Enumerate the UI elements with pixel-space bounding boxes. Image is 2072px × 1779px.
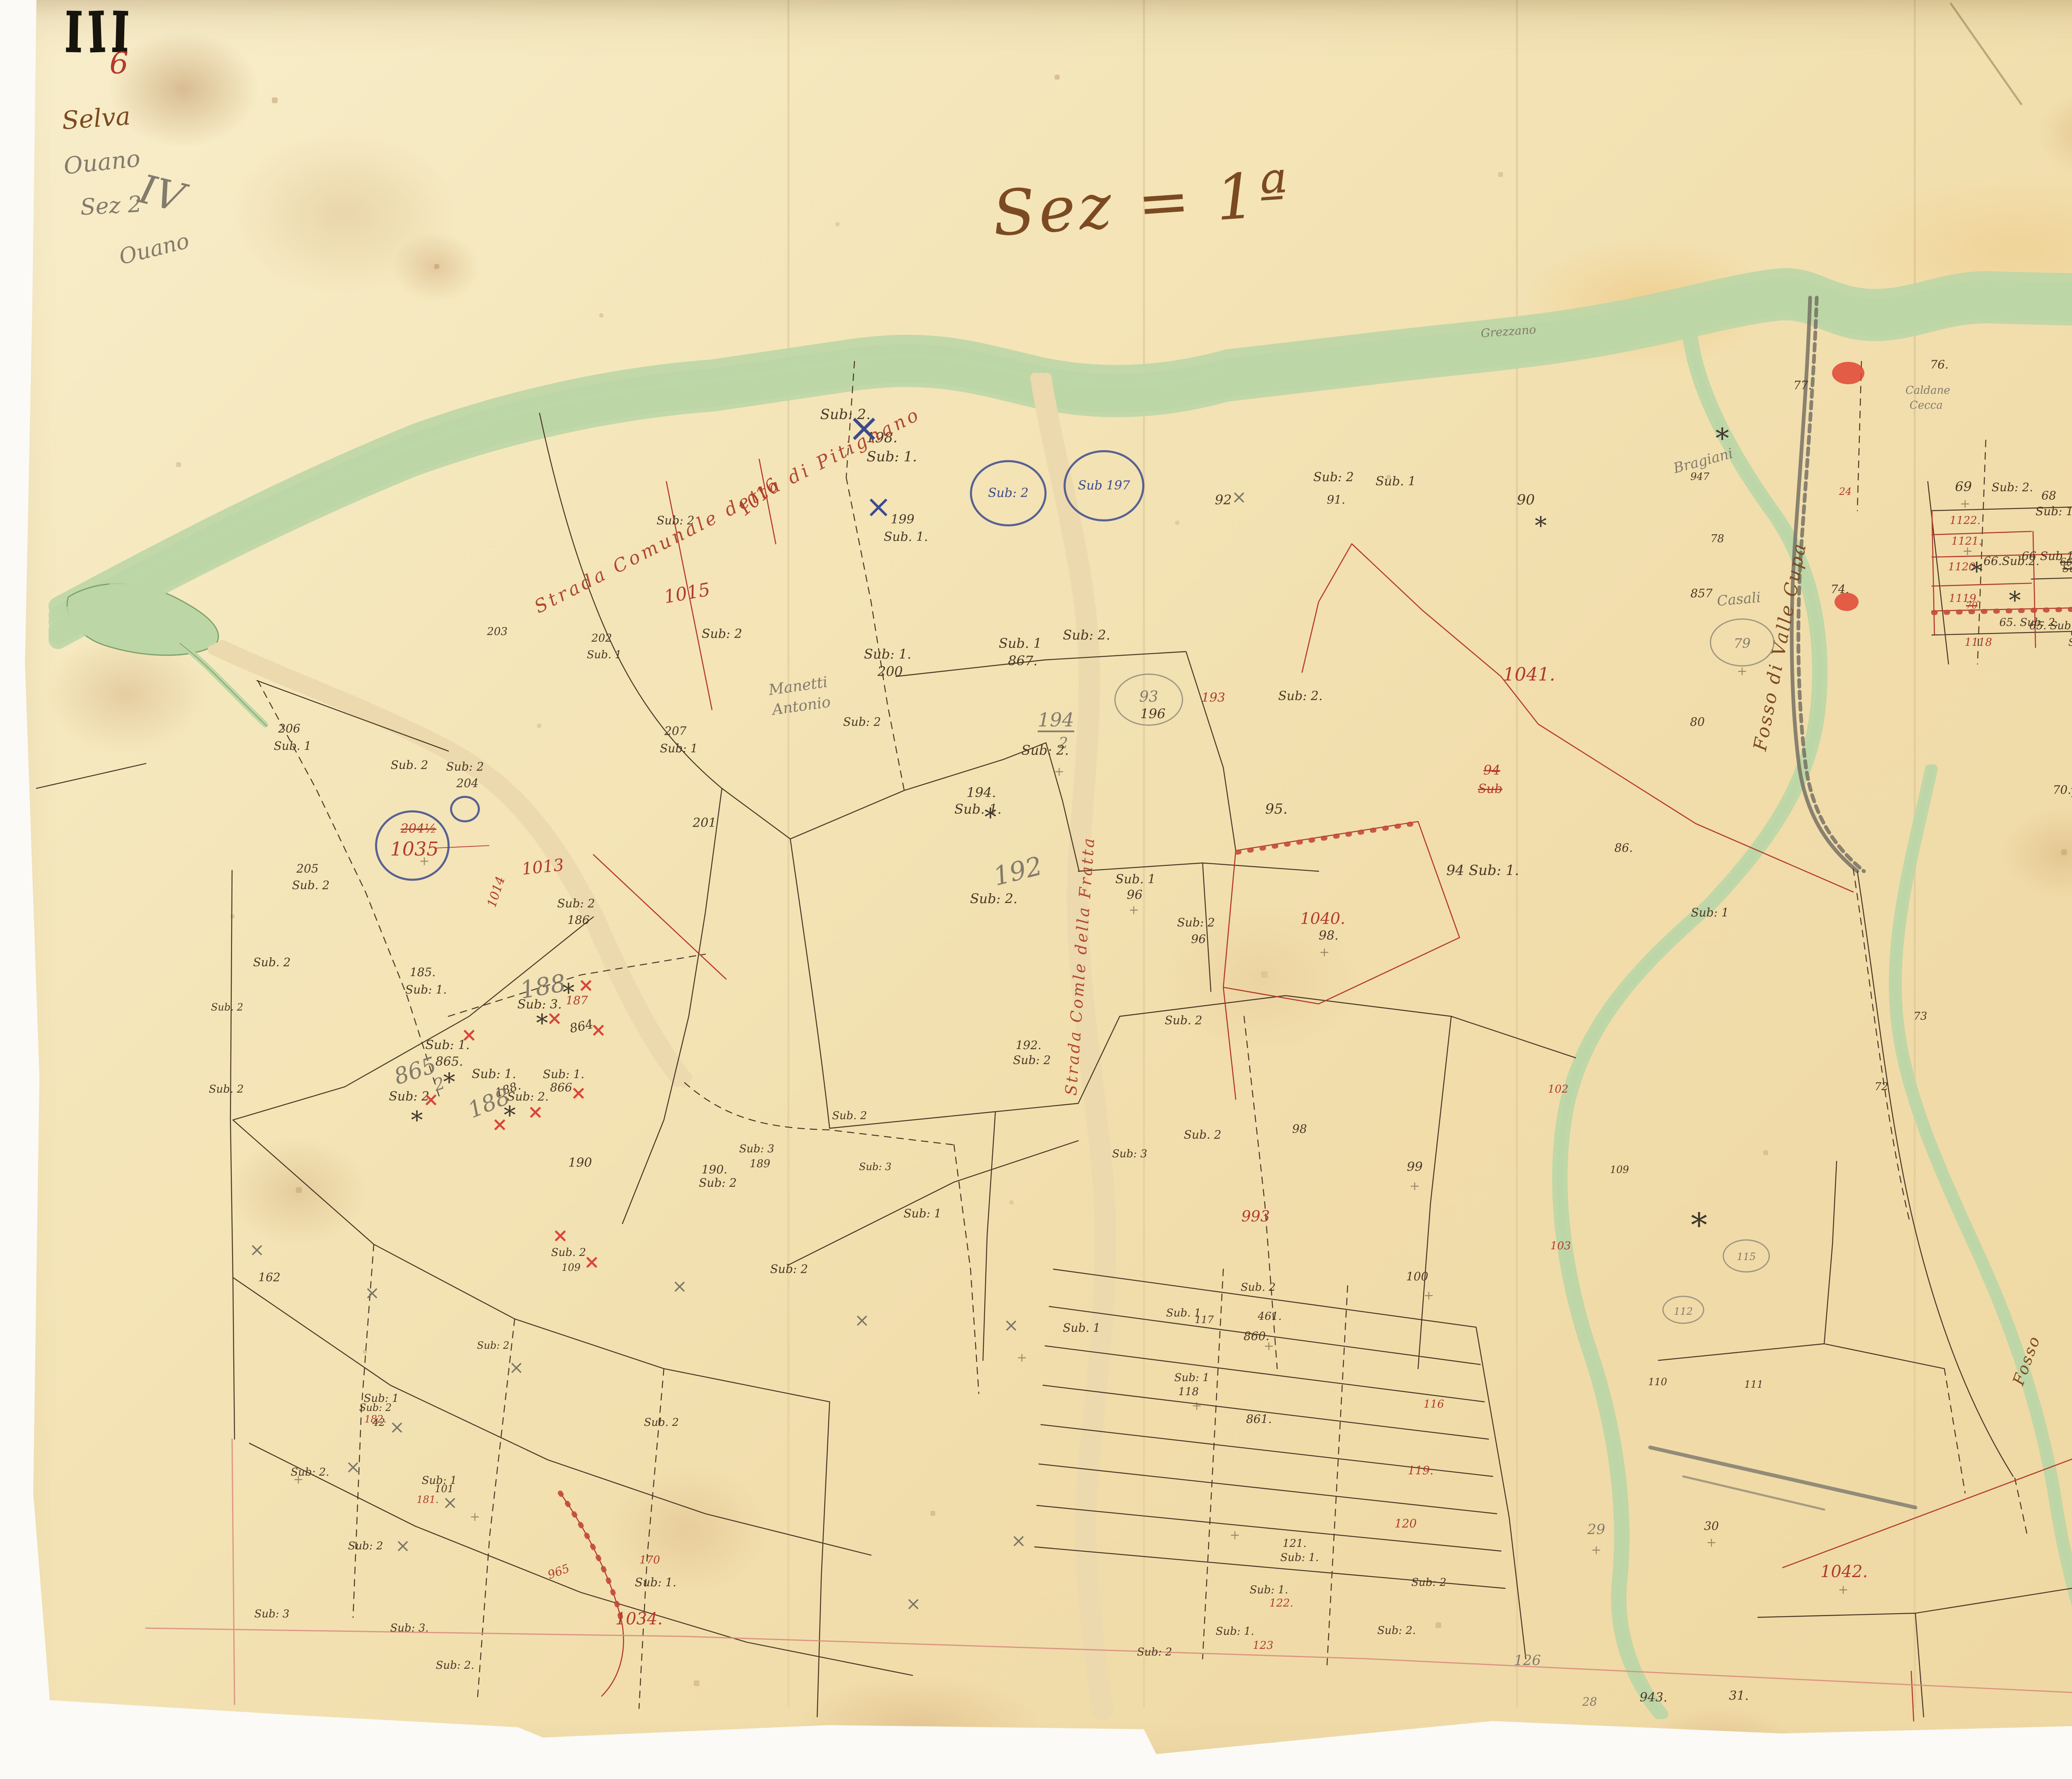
parcel-label: Sub: 2.: [1377, 1625, 1416, 1636]
parcel-label: Sub: 2.: [1278, 690, 1322, 703]
xp-mark: ×: [509, 1359, 524, 1377]
xp-mark: ×: [854, 1311, 870, 1330]
parcel-label: Casali: [1716, 590, 1761, 608]
parcel-label: 42: [373, 1418, 385, 1428]
parcel-label: Sub: 1.: [867, 450, 917, 464]
parcel-label: Sub: 1.: [1249, 1585, 1288, 1595]
parcel-label: 193: [1201, 692, 1225, 704]
parcel-label: Sub. 2: [292, 880, 330, 891]
parcel-label: Sub. 1: [1375, 475, 1416, 488]
xred-mark: ×: [461, 1025, 477, 1044]
parcel-label: 199: [891, 514, 914, 526]
parcel-label: 96: [1191, 933, 1206, 945]
xp-mark: ×: [906, 1595, 921, 1613]
parcel-label: Sub. 2: [209, 1084, 244, 1095]
parcel-label: 1013: [521, 857, 564, 877]
parcel-label: Sub: 2: [702, 628, 742, 640]
plus-mark: +: [1128, 904, 1139, 916]
astk-mark: *: [563, 980, 575, 1004]
parcel-label: Sub: 1.: [2068, 637, 2072, 647]
parcel-label: Grezzano: [1480, 324, 1536, 339]
parcel-label: 99: [1407, 1161, 1423, 1173]
parcel-label: 201: [692, 817, 716, 829]
plus-mark: +: [1838, 1584, 1848, 1596]
parcel-label: Sub: 2.: [1021, 744, 1069, 757]
parcel-label: 98: [1292, 1123, 1307, 1135]
parcel-label: 80: [1690, 716, 1705, 728]
red-blob-mark: [1835, 593, 1859, 611]
pencil-circle-mark: [1663, 1296, 1704, 1324]
parcel-label: Sub: 2: [477, 1340, 509, 1350]
parcel-label: 1014: [486, 875, 507, 909]
parcel-label: Sub: 3: [1112, 1149, 1147, 1159]
parcel-label: 109: [1610, 1165, 1629, 1175]
xp-mark: ×: [672, 1277, 687, 1296]
parcel-label: Sub. 2: [551, 1247, 586, 1258]
parcel-label: 200: [877, 665, 903, 678]
parcel-label: Sub: 1: [660, 743, 697, 754]
parcel-label: Sub. 1.: [884, 531, 928, 543]
parcel-label: 865: [392, 1054, 439, 1088]
parcel-label: 1122.: [1950, 515, 1980, 526]
plus-mark: +: [1191, 1400, 1202, 1412]
parcel-label: 943.: [1640, 1692, 1668, 1704]
parcel-label: 95.: [1265, 802, 1288, 816]
parcel-label: Sub: 2: [843, 716, 881, 728]
parcel-label: Sub: 1.: [472, 1068, 516, 1081]
plus-mark: +: [1017, 1352, 1027, 1364]
parcel-label: 117: [1195, 1315, 1214, 1325]
plus-mark: +: [1264, 1340, 1274, 1352]
parcel-label: 24: [1839, 487, 1852, 497]
parcel-label: 110: [1648, 1377, 1667, 1387]
astk-mark: *: [1535, 514, 1547, 538]
parcel-label: 192: [991, 853, 1045, 890]
parcel-label: 192.: [1016, 1040, 1041, 1051]
plus-mark: +: [1409, 1180, 1420, 1192]
xp-mark: ×: [395, 1537, 411, 1555]
parcel-label: Sub: 1.: [543, 1069, 584, 1080]
parcel-label: 30: [1704, 1520, 1719, 1532]
parcel-label: 92: [1215, 493, 1232, 507]
parcel-label: 90: [1517, 493, 1535, 507]
scanned-cadastral-map: 6 Selva Ouano Sez 2 IV Ouano Sez = 1ª Su…: [0, 0, 2072, 1779]
xp-mark: ×: [2069, 783, 2072, 802]
parcel-label: Sub: 2: [699, 1177, 736, 1189]
parcel-label: Sub: 2.: [970, 892, 1018, 905]
xp-mark: ×: [443, 1494, 458, 1512]
parcel-label: 205: [296, 863, 318, 875]
parcel-label: 1042.: [1820, 1563, 1868, 1580]
parcel-label: Sub: 3.: [390, 1623, 428, 1634]
parcel-label: 109: [562, 1263, 581, 1272]
xp-mark: ×: [1011, 1532, 1026, 1550]
parcel-label: 78: [1710, 533, 1724, 544]
parcel-label: Sub. 2: [1241, 1282, 1276, 1293]
parcel-label: Sub: 2: [1177, 917, 1215, 928]
plus-mark: +: [293, 1474, 303, 1486]
parcel-label: 170: [639, 1555, 660, 1566]
plus-mark: +: [1319, 946, 1329, 959]
astk-mark: *: [443, 1070, 455, 1094]
astk-mark: *: [504, 1103, 516, 1127]
parcel-label: 72: [1874, 1081, 1888, 1092]
xp-mark: ×: [1004, 1316, 1019, 1335]
parcel-label: 866: [550, 1082, 572, 1093]
parcel-label: Sub: 2.: [436, 1660, 474, 1671]
parcel-label: Sub. 2: [644, 1417, 679, 1428]
parcel-label: Sub: 1: [903, 1208, 941, 1219]
xb-mark: ×: [847, 408, 881, 448]
parcel-label: 94 Sub: 1.: [1446, 863, 1519, 877]
parcel-label: Sub: 1.: [2036, 506, 2072, 517]
parcel-label: 123: [1253, 1640, 1273, 1651]
xp-mark: ×: [346, 1458, 361, 1476]
astk-mark: *: [1691, 1209, 1707, 1242]
parcel-label: 194: [1038, 710, 1074, 732]
parcel-label: 185.: [410, 967, 436, 978]
astk-mark: *: [1716, 425, 1729, 452]
parcel-label: 98.: [1319, 930, 1339, 942]
parcel-label: Sub. 1: [587, 650, 622, 660]
parcel-label: Sub: 1.: [635, 1577, 676, 1588]
parcel-label: Sub: 1.: [1280, 1552, 1319, 1563]
parcel-label: 100: [1406, 1271, 1428, 1282]
parcel-label: Cecca: [1910, 400, 1943, 411]
parcel-label: 31.: [1729, 1690, 1749, 1702]
astk-mark: *: [2009, 588, 2021, 612]
parcel-label: 190.: [702, 1164, 727, 1175]
parcel-label: Sub. 1: [1063, 1322, 1101, 1334]
parcel-label: Sub. 1: [1115, 873, 1155, 886]
parcel-label: 861.: [1246, 1413, 1272, 1425]
parcel-label: 461.: [1258, 1311, 1282, 1322]
parcel-label: 102: [1548, 1084, 1569, 1095]
xp-mark: ×: [249, 1241, 265, 1259]
parcel-label: 867.: [1008, 654, 1037, 667]
parcel-label: 76.: [1930, 359, 1949, 371]
parcel-label: 1118: [1965, 637, 1992, 648]
parcel-label: 65. Sub 1.: [2029, 620, 2072, 631]
parcel-label: 865.: [436, 1056, 463, 1068]
road-label: Strada Comle della Fratta: [1063, 836, 1097, 1096]
xp-mark: ×: [365, 1284, 380, 1302]
parcel-label: Sub: 1.: [864, 647, 912, 661]
parcel-label: 29: [1587, 1522, 1605, 1537]
astk-mark: *: [1971, 559, 1983, 583]
parcel-label: 69: [1955, 480, 1972, 493]
parcel-label: 118: [1178, 1386, 1199, 1397]
parcel-label: 103: [1550, 1241, 1571, 1251]
parcel-label: Sub. 2: [1184, 1129, 1222, 1141]
parcel-label: Sub: [1478, 783, 1502, 795]
astk-mark: *: [985, 805, 997, 829]
parcel-label: 1040.: [1300, 911, 1346, 926]
parcel-label: Sub: 1: [1174, 1372, 1210, 1383]
pencil-circle-mark: [1710, 618, 1774, 667]
parcel-label: 122.: [1269, 1598, 1293, 1609]
plus-mark: +: [1962, 545, 1973, 557]
plus-mark: +: [1230, 1529, 1240, 1541]
parcel-label: 119.: [1408, 1465, 1433, 1476]
parcel-label: Sub. 2: [391, 759, 428, 771]
parcel-label: 116: [1423, 1399, 1444, 1410]
parcel-label: Manetti: [768, 675, 829, 698]
parcel-label: 181.: [416, 1495, 438, 1505]
parcel-label: 203: [487, 626, 508, 637]
parcel-label: Sub: 1.: [405, 984, 447, 996]
plus-mark: +: [470, 1511, 480, 1523]
parcel-label: Sub. 1: [274, 740, 312, 752]
label-layer: Sub: 2.198.Sub: 1.10161015Sub: 2Sub: 2Su…: [0, 0, 2072, 1779]
blue-circle-mark: [1064, 450, 1145, 521]
parcel-label: 162: [258, 1272, 280, 1283]
parcel-label: Sub: 2: [557, 898, 595, 909]
parcel-label: Sub: 2.: [1992, 482, 2033, 493]
plus-mark: +: [1591, 1544, 1601, 1556]
parcel-label: 120: [1394, 1518, 1416, 1529]
xred-mark: ×: [584, 1252, 600, 1271]
xp-mark: ×: [1232, 488, 1247, 507]
plus-mark: +: [1054, 766, 1064, 778]
parcel-label: 1034.: [615, 1611, 663, 1627]
parcel-label: 189: [750, 1159, 770, 1169]
parcel-label: Sub: 2: [446, 761, 484, 773]
astk-mark: *: [536, 1011, 548, 1035]
plus-mark: +: [1960, 498, 1970, 510]
parcel-label: Sub: 1: [1691, 907, 1728, 919]
parcel-label: Sub. 2: [253, 957, 291, 968]
parcel-label: Antonio: [771, 695, 831, 717]
parcel-label: 965: [546, 1563, 571, 1581]
parcel-label: 1041.: [1503, 666, 1555, 684]
parcel-label: 194.: [966, 786, 996, 799]
xred-mark: ×: [423, 1090, 439, 1109]
parcel-label: 126: [1514, 1653, 1541, 1668]
parcel-label: Sub: 2: [1411, 1577, 1447, 1588]
parcel-label: Sub. 2: [832, 1110, 867, 1121]
xb-mark: ×: [865, 491, 892, 522]
parcel-label: 202: [591, 633, 612, 644]
parcel-label: Sub: 2: [348, 1541, 383, 1551]
parcel-label: 190: [568, 1157, 592, 1169]
parcel-label: 1015: [663, 581, 712, 607]
blue-circle-mark: [375, 810, 450, 881]
parcel-label: 993: [1242, 1209, 1270, 1224]
parcel-label: 86.: [1615, 842, 1633, 854]
parcel-label: 91.: [1327, 494, 1346, 506]
parcel-label: Sub: 3: [859, 1162, 891, 1172]
parcel-label: 73: [1913, 1011, 1927, 1022]
xred-mark: ×: [571, 1083, 587, 1102]
parcel-label: 204: [456, 778, 478, 789]
parcel-label: 70: [1966, 601, 1978, 611]
parcel-label: 206: [278, 723, 300, 734]
parcel-label: Caldane: [1905, 385, 1950, 396]
parcel-label: Sub: 3: [254, 1609, 290, 1619]
xred-mark: ×: [528, 1102, 544, 1121]
parcel-label: Sub: 2: [359, 1403, 392, 1413]
parcel-label: Sub: 2: [770, 1263, 808, 1275]
xred-mark: ×: [552, 1226, 569, 1245]
parcel-label: Sub: 2: [1013, 1054, 1051, 1066]
xred-mark: ×: [547, 1008, 563, 1028]
parcel-label: 68: [2041, 490, 2056, 502]
parcel-label: 121.: [1283, 1538, 1307, 1549]
plus-mark: +: [1706, 1537, 1716, 1549]
parcel-label: 96: [1127, 889, 1143, 902]
parcel-label: Sub: 3: [739, 1144, 775, 1154]
parcel-label: 28: [1582, 1696, 1597, 1708]
plus-mark: +: [1423, 1289, 1434, 1302]
astk-mark: *: [411, 1108, 423, 1132]
xred-mark: ×: [578, 975, 594, 994]
parcel-label: 857: [1690, 588, 1712, 599]
parcel-label: Sub: 2: [1313, 471, 1354, 484]
parcel-label: 207: [664, 725, 686, 737]
parcel-label: Sub: 2: [1137, 1647, 1172, 1658]
pencil-circle-mark: [1114, 674, 1183, 726]
parcel-label: 77.: [1794, 380, 1812, 391]
parcel-label: Sub: 1.: [1215, 1626, 1254, 1637]
blue-circle-mark: [450, 796, 480, 822]
parcel-label: 111: [1744, 1379, 1763, 1389]
parcel-label: Sub. 1: [999, 637, 1042, 650]
parcel-label: 186: [567, 914, 589, 926]
blue-circle-mark: [970, 460, 1047, 526]
xp-mark: ×: [390, 1418, 405, 1437]
xred-mark: ×: [591, 1020, 607, 1039]
parcel-label: 947: [1690, 472, 1709, 482]
parcel-label: Sub. 2: [1165, 1015, 1203, 1026]
road-label: Fosso: [2010, 1333, 2043, 1387]
parcel-label: Sub: 2.: [1063, 628, 1111, 642]
red-blob-mark: [1832, 362, 1864, 384]
parcel-label: Sub.1: [2062, 564, 2072, 574]
pencil-circle-mark: [1723, 1239, 1770, 1272]
plus-mark: +: [1737, 665, 1747, 678]
parcel-label: Sub. 2: [211, 1002, 243, 1012]
parcel-label: 94: [1484, 763, 1501, 777]
